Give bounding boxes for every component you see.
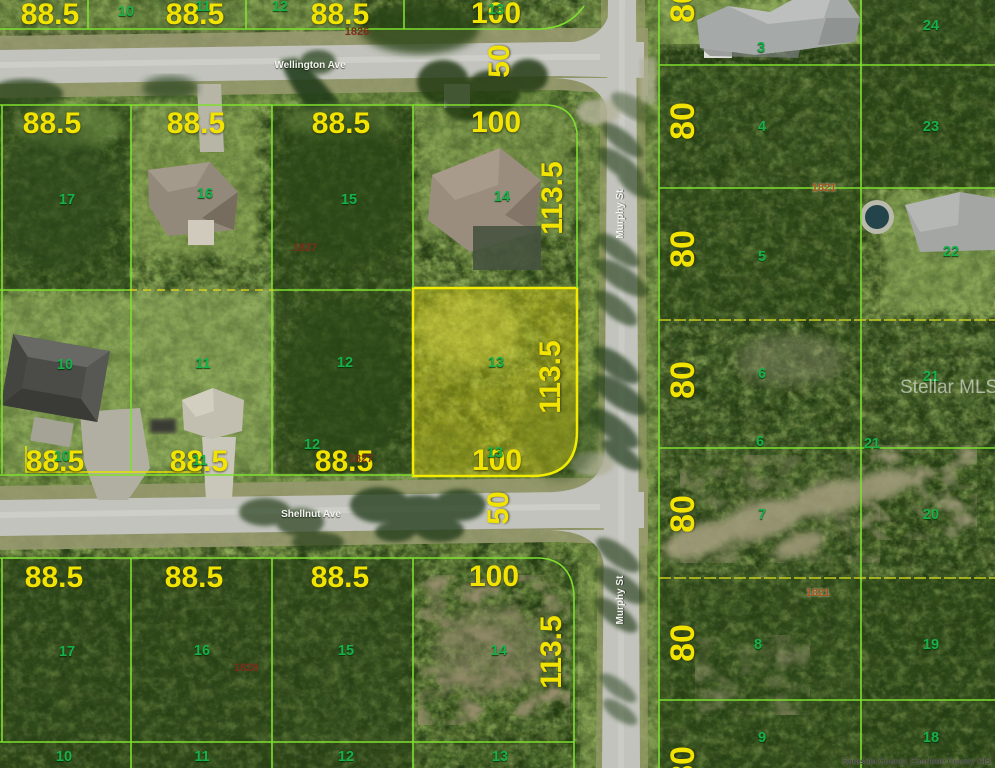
svg-text:13: 13 <box>492 749 508 765</box>
svg-text:22: 22 <box>943 244 959 260</box>
svg-text:10: 10 <box>57 357 73 373</box>
svg-text:19: 19 <box>923 637 939 653</box>
svg-text:7: 7 <box>758 507 766 523</box>
svg-text:1828: 1828 <box>234 662 258 674</box>
svg-text:88.5: 88.5 <box>21 0 79 31</box>
svg-text:Murphy St: Murphy St <box>615 189 626 239</box>
svg-text:11: 11 <box>195 356 210 372</box>
svg-text:21: 21 <box>864 436 880 452</box>
svg-text:12: 12 <box>304 437 320 453</box>
svg-text:1827: 1827 <box>349 453 373 465</box>
svg-text:1821: 1821 <box>806 587 830 599</box>
svg-text:3: 3 <box>757 40 765 56</box>
svg-text:88.5: 88.5 <box>25 561 83 594</box>
svg-text:10: 10 <box>56 749 72 765</box>
svg-text:17: 17 <box>59 192 75 208</box>
svg-text:Shellnut Ave: Shellnut Ave <box>281 509 341 520</box>
svg-text:1826: 1826 <box>345 26 369 38</box>
svg-text:50: 50 <box>483 44 516 77</box>
svg-text:80: 80 <box>664 746 702 768</box>
svg-text:24: 24 <box>923 18 939 34</box>
svg-text:80: 80 <box>664 0 702 23</box>
svg-text:11: 11 <box>194 749 209 765</box>
svg-text:80: 80 <box>664 624 702 662</box>
svg-text:15: 15 <box>341 192 357 208</box>
svg-text:80: 80 <box>664 230 702 268</box>
svg-text:4: 4 <box>758 119 766 135</box>
svg-text:88.5: 88.5 <box>311 561 369 594</box>
svg-text:6: 6 <box>756 434 764 450</box>
svg-text:11: 11 <box>192 453 207 469</box>
svg-text:50: 50 <box>482 491 515 524</box>
svg-text:6: 6 <box>758 366 766 382</box>
svg-text:1821: 1821 <box>812 182 836 194</box>
svg-text:20: 20 <box>923 507 939 523</box>
svg-text:23: 23 <box>923 119 939 135</box>
svg-text:10: 10 <box>118 4 134 20</box>
svg-text:16: 16 <box>197 186 213 202</box>
svg-text:Stellar MLS: Stellar MLS <box>900 377 995 398</box>
svg-text:14: 14 <box>494 189 510 205</box>
svg-text:12: 12 <box>338 749 354 765</box>
svg-text:13: 13 <box>488 355 504 371</box>
svg-text:80: 80 <box>664 495 702 533</box>
svg-text:10: 10 <box>54 449 70 465</box>
svg-text:15: 15 <box>338 643 354 659</box>
svg-text:88.5: 88.5 <box>23 107 81 140</box>
svg-text:Murphy St: Murphy St <box>615 575 626 625</box>
svg-text:9: 9 <box>758 730 766 746</box>
svg-text:113.5: 113.5 <box>535 615 568 688</box>
svg-text:1827: 1827 <box>293 242 317 254</box>
svg-text:17: 17 <box>59 644 75 660</box>
svg-text:8: 8 <box>754 637 762 653</box>
svg-text:88.5: 88.5 <box>167 107 225 140</box>
svg-text:80: 80 <box>664 361 702 399</box>
svg-text:113.5: 113.5 <box>536 161 569 234</box>
svg-text:80: 80 <box>664 102 702 140</box>
svg-text:5: 5 <box>758 249 766 265</box>
svg-text:13: 13 <box>487 445 503 461</box>
svg-text:12: 12 <box>337 355 353 371</box>
svg-text:11: 11 <box>195 0 210 15</box>
svg-text:12: 12 <box>272 0 288 15</box>
svg-text:13: 13 <box>488 2 504 18</box>
svg-text:88.5: 88.5 <box>312 107 370 140</box>
svg-text:113.5: 113.5 <box>534 340 567 413</box>
svg-text:100: 100 <box>469 560 519 593</box>
svg-text:16: 16 <box>194 643 210 659</box>
svg-text:Wellington Ave: Wellington Ave <box>274 60 346 71</box>
svg-text:14: 14 <box>491 643 507 659</box>
svg-text:18: 18 <box>923 730 939 746</box>
svg-text:100: 100 <box>471 106 521 139</box>
svg-text:88.5: 88.5 <box>165 561 223 594</box>
svg-text:Sarasota County, Charlotte Cou: Sarasota County, Charlotte County GIS <box>843 757 992 766</box>
